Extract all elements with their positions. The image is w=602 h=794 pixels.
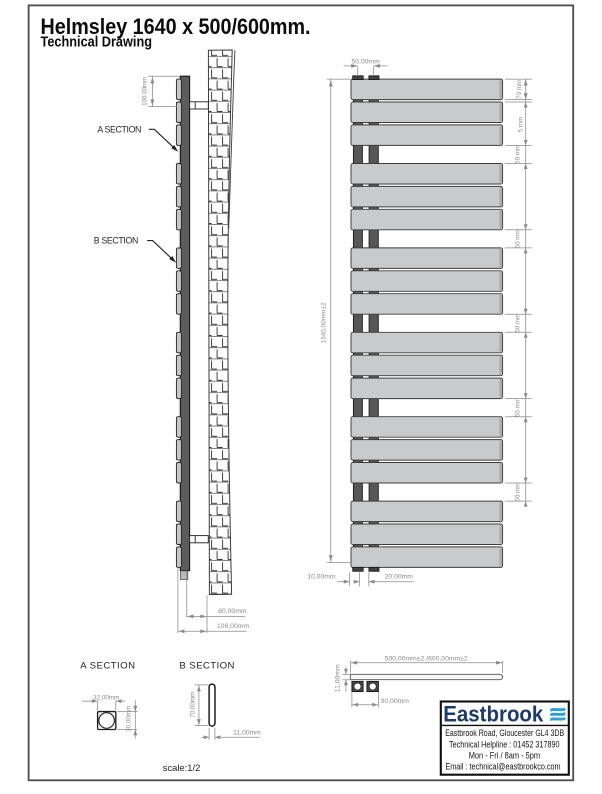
svg-text:80,00mm: 80,00mm	[218, 608, 247, 615]
svg-text:Eastbrook: Eastbrook	[443, 702, 544, 727]
svg-text:100.00mm: 100.00mm	[142, 77, 149, 106]
svg-text:Technical Drawing: Technical Drawing	[41, 35, 153, 51]
svg-text:A SECTION: A SECTION	[80, 660, 136, 671]
svg-text:50 mm: 50 mm	[514, 145, 521, 164]
svg-text:30,00mm: 30,00mm	[381, 698, 410, 705]
svg-text:B SECTION: B SECTION	[94, 236, 139, 246]
svg-text:50 mm: 50 mm	[514, 483, 521, 502]
svg-text:70 mm: 70 mm	[516, 80, 523, 99]
svg-text:Technical Helpline : 01452 317: Technical Helpline : 01452 317890	[449, 740, 560, 750]
svg-text:106,00mm: 106,00mm	[217, 623, 249, 630]
svg-text:11,00mm: 11,00mm	[335, 664, 342, 692]
svg-text:30,00mm: 30,00mm	[125, 706, 132, 732]
svg-text:scale:1/2: scale:1/2	[163, 762, 201, 773]
svg-text:50 mm: 50 mm	[514, 229, 521, 248]
svg-text:Mon - Fri / 8am - 5pm: Mon - Fri / 8am - 5pm	[469, 751, 541, 761]
svg-text:5 mm: 5 mm	[517, 117, 524, 132]
svg-text:500,00mm±2 /600,00mm±2: 500,00mm±2 /600,00mm±2	[385, 655, 468, 662]
svg-text:20,00mm: 20,00mm	[385, 574, 414, 581]
svg-text:50.00mm: 50.00mm	[351, 59, 380, 66]
svg-text:32,00mm: 32,00mm	[93, 694, 119, 701]
svg-text:50 mm: 50 mm	[514, 314, 521, 333]
svg-text:10,00mm: 10,00mm	[307, 574, 336, 581]
svg-text:Email : technical@eastbrookco.: Email : technical@eastbrookco.com	[445, 762, 560, 772]
svg-text:50 mm: 50 mm	[514, 398, 521, 417]
svg-text:A SECTION: A SECTION	[97, 124, 141, 134]
svg-text:11,00mm: 11,00mm	[233, 730, 261, 737]
svg-text:B SECTION: B SECTION	[179, 660, 235, 671]
svg-text:70,00mm: 70,00mm	[189, 692, 196, 718]
svg-text:Eastbrook Road, Gloucester GL4: Eastbrook Road, Gloucester GL4 3DB	[445, 728, 564, 738]
svg-text:1640,00mm±2: 1640,00mm±2	[320, 302, 327, 343]
